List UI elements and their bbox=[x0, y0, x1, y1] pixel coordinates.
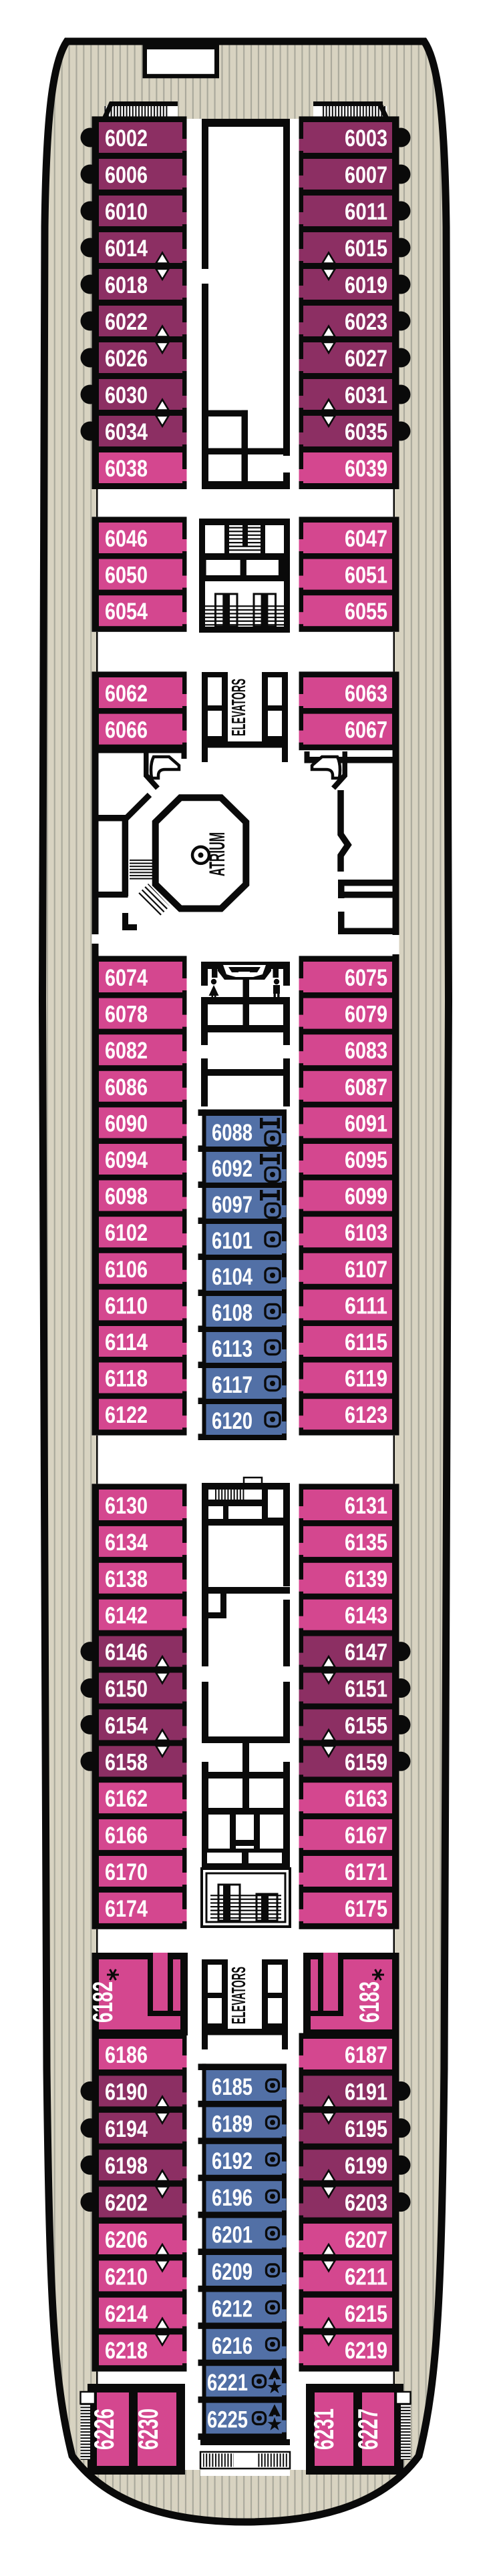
svg-text:6183: 6183 bbox=[353, 1981, 385, 2023]
svg-text:6083: 6083 bbox=[345, 1038, 387, 1064]
svg-text:6212: 6212 bbox=[212, 2296, 253, 2322]
svg-text:6146: 6146 bbox=[105, 1640, 148, 1666]
svg-text:6086: 6086 bbox=[105, 1074, 148, 1100]
svg-text:6030: 6030 bbox=[105, 382, 148, 408]
svg-text:6099: 6099 bbox=[345, 1184, 387, 1210]
svg-text:6038: 6038 bbox=[105, 456, 148, 482]
svg-text:6094: 6094 bbox=[105, 1147, 148, 1173]
svg-text:6120: 6120 bbox=[212, 1408, 253, 1434]
svg-text:6143: 6143 bbox=[345, 1603, 387, 1629]
svg-text:6003: 6003 bbox=[345, 125, 387, 151]
svg-text:6098: 6098 bbox=[105, 1184, 148, 1210]
svg-text:6192: 6192 bbox=[212, 2148, 253, 2174]
svg-text:6031: 6031 bbox=[345, 382, 387, 408]
svg-text:6074: 6074 bbox=[105, 965, 148, 991]
svg-text:6092: 6092 bbox=[212, 1156, 253, 1182]
svg-text:6219: 6219 bbox=[345, 2338, 387, 2364]
svg-text:6203: 6203 bbox=[345, 2190, 387, 2216]
svg-text:★: ★ bbox=[267, 2416, 282, 2434]
svg-text:6051: 6051 bbox=[345, 563, 387, 589]
svg-text:6158: 6158 bbox=[105, 1749, 148, 1775]
svg-text:6159: 6159 bbox=[345, 1749, 387, 1775]
svg-text:6139: 6139 bbox=[345, 1566, 387, 1592]
svg-text:6194: 6194 bbox=[105, 2116, 148, 2142]
svg-text:6162: 6162 bbox=[105, 1786, 148, 1812]
svg-text:6150: 6150 bbox=[105, 1676, 148, 1702]
svg-text:6231: 6231 bbox=[308, 2408, 339, 2450]
svg-text:6108: 6108 bbox=[212, 1300, 253, 1326]
svg-text:6026: 6026 bbox=[105, 346, 148, 372]
svg-text:ELEVATORS: ELEVATORS bbox=[228, 1967, 250, 2024]
svg-text:6187: 6187 bbox=[345, 2042, 387, 2068]
svg-text:6110: 6110 bbox=[105, 1293, 148, 1319]
svg-text:6034: 6034 bbox=[105, 419, 148, 445]
svg-text:6090: 6090 bbox=[105, 1110, 148, 1137]
svg-text:6201: 6201 bbox=[212, 2222, 253, 2248]
svg-text:6104: 6104 bbox=[212, 1264, 253, 1290]
svg-text:6195: 6195 bbox=[345, 2116, 387, 2142]
svg-text:6199: 6199 bbox=[345, 2153, 387, 2179]
svg-text:6147: 6147 bbox=[345, 1640, 387, 1666]
svg-text:6011: 6011 bbox=[345, 199, 387, 225]
svg-text:6113: 6113 bbox=[212, 1336, 253, 1362]
svg-text:6185: 6185 bbox=[212, 2074, 253, 2100]
svg-text:6198: 6198 bbox=[105, 2153, 148, 2179]
svg-text:6010: 6010 bbox=[105, 199, 148, 225]
svg-text:6130: 6130 bbox=[105, 1493, 148, 1519]
svg-text:6138: 6138 bbox=[105, 1566, 148, 1592]
svg-text:6114: 6114 bbox=[105, 1329, 148, 1355]
svg-text:6095: 6095 bbox=[345, 1147, 387, 1173]
svg-text:6123: 6123 bbox=[345, 1402, 387, 1428]
svg-text:6062: 6062 bbox=[105, 681, 148, 707]
svg-text:6097: 6097 bbox=[212, 1192, 253, 1218]
svg-text:6190: 6190 bbox=[105, 2079, 148, 2105]
svg-text:6216: 6216 bbox=[212, 2333, 253, 2359]
svg-text:ELEVATORS: ELEVATORS bbox=[228, 679, 250, 736]
svg-text:6103: 6103 bbox=[345, 1220, 387, 1246]
svg-text:6226: 6226 bbox=[88, 2408, 120, 2450]
svg-text:6207: 6207 bbox=[345, 2227, 387, 2253]
svg-text:6002: 6002 bbox=[105, 125, 148, 151]
svg-text:6078: 6078 bbox=[105, 1002, 148, 1028]
svg-text:6131: 6131 bbox=[345, 1493, 387, 1519]
svg-text:6134: 6134 bbox=[105, 1530, 148, 1556]
svg-text:6221: 6221 bbox=[207, 2370, 248, 2396]
svg-text:6102: 6102 bbox=[105, 1220, 148, 1246]
svg-text:6111: 6111 bbox=[345, 1293, 387, 1319]
svg-text:6218: 6218 bbox=[105, 2338, 148, 2364]
svg-text:6227: 6227 bbox=[352, 2408, 383, 2450]
svg-text:6118: 6118 bbox=[105, 1366, 148, 1392]
svg-text:6202: 6202 bbox=[105, 2190, 148, 2216]
svg-text:6210: 6210 bbox=[105, 2264, 148, 2290]
svg-text:6230: 6230 bbox=[132, 2408, 164, 2450]
svg-text:6046: 6046 bbox=[105, 526, 148, 552]
svg-text:6211: 6211 bbox=[345, 2264, 387, 2290]
svg-text:6039: 6039 bbox=[345, 456, 387, 482]
svg-text:★: ★ bbox=[267, 2378, 282, 2396]
svg-text:6091: 6091 bbox=[345, 1110, 387, 1137]
svg-text:6006: 6006 bbox=[105, 162, 148, 188]
svg-text:6054: 6054 bbox=[105, 599, 148, 625]
svg-text:6191: 6191 bbox=[345, 2079, 387, 2105]
svg-text:6035: 6035 bbox=[345, 419, 387, 445]
svg-text:6189: 6189 bbox=[212, 2111, 253, 2137]
svg-text:6206: 6206 bbox=[105, 2227, 148, 2253]
svg-text:6055: 6055 bbox=[345, 599, 387, 625]
svg-text:6019: 6019 bbox=[345, 272, 387, 298]
svg-text:6135: 6135 bbox=[345, 1530, 387, 1556]
svg-text:6079: 6079 bbox=[345, 1002, 387, 1028]
svg-text:6174: 6174 bbox=[105, 1896, 148, 1922]
svg-text:6122: 6122 bbox=[105, 1402, 148, 1428]
svg-text:6018: 6018 bbox=[105, 272, 148, 298]
svg-text:6117: 6117 bbox=[212, 1372, 253, 1398]
svg-text:6142: 6142 bbox=[105, 1603, 148, 1629]
svg-text:6087: 6087 bbox=[345, 1074, 387, 1100]
svg-text:6066: 6066 bbox=[105, 717, 148, 743]
svg-text:6182: 6182 bbox=[87, 1981, 118, 2023]
svg-text:6151: 6151 bbox=[345, 1676, 387, 1702]
svg-text:6170: 6170 bbox=[105, 1859, 148, 1885]
svg-text:6014: 6014 bbox=[105, 236, 148, 262]
svg-text:6063: 6063 bbox=[345, 681, 387, 707]
svg-text:6154: 6154 bbox=[105, 1712, 148, 1738]
svg-text:6027: 6027 bbox=[345, 346, 387, 372]
svg-text:6007: 6007 bbox=[345, 162, 387, 188]
svg-text:6115: 6115 bbox=[345, 1329, 387, 1355]
svg-text:6106: 6106 bbox=[105, 1257, 148, 1283]
svg-text:6215: 6215 bbox=[345, 2301, 387, 2327]
svg-text:6196: 6196 bbox=[212, 2185, 253, 2211]
svg-text:6050: 6050 bbox=[105, 563, 148, 589]
svg-text:6119: 6119 bbox=[345, 1366, 387, 1392]
svg-text:6082: 6082 bbox=[105, 1038, 148, 1064]
svg-text:6107: 6107 bbox=[345, 1257, 387, 1283]
svg-text:6167: 6167 bbox=[345, 1823, 387, 1849]
svg-text:6155: 6155 bbox=[345, 1712, 387, 1738]
svg-text:6101: 6101 bbox=[212, 1228, 253, 1254]
svg-text:6067: 6067 bbox=[345, 717, 387, 743]
svg-text:6088: 6088 bbox=[212, 1120, 253, 1146]
svg-text:6163: 6163 bbox=[345, 1786, 387, 1812]
svg-text:6015: 6015 bbox=[345, 236, 387, 262]
svg-text:ATRIUM: ATRIUM bbox=[205, 832, 229, 876]
svg-text:6225: 6225 bbox=[207, 2407, 248, 2433]
svg-text:6022: 6022 bbox=[105, 309, 148, 335]
svg-text:6175: 6175 bbox=[345, 1896, 387, 1922]
svg-text:6209: 6209 bbox=[212, 2259, 253, 2285]
svg-text:6023: 6023 bbox=[345, 309, 387, 335]
svg-text:6214: 6214 bbox=[105, 2301, 148, 2327]
svg-text:6171: 6171 bbox=[345, 1859, 387, 1885]
svg-text:6166: 6166 bbox=[105, 1823, 148, 1849]
svg-text:6075: 6075 bbox=[345, 965, 387, 991]
svg-text:6047: 6047 bbox=[345, 526, 387, 552]
svg-text:6186: 6186 bbox=[105, 2042, 148, 2068]
